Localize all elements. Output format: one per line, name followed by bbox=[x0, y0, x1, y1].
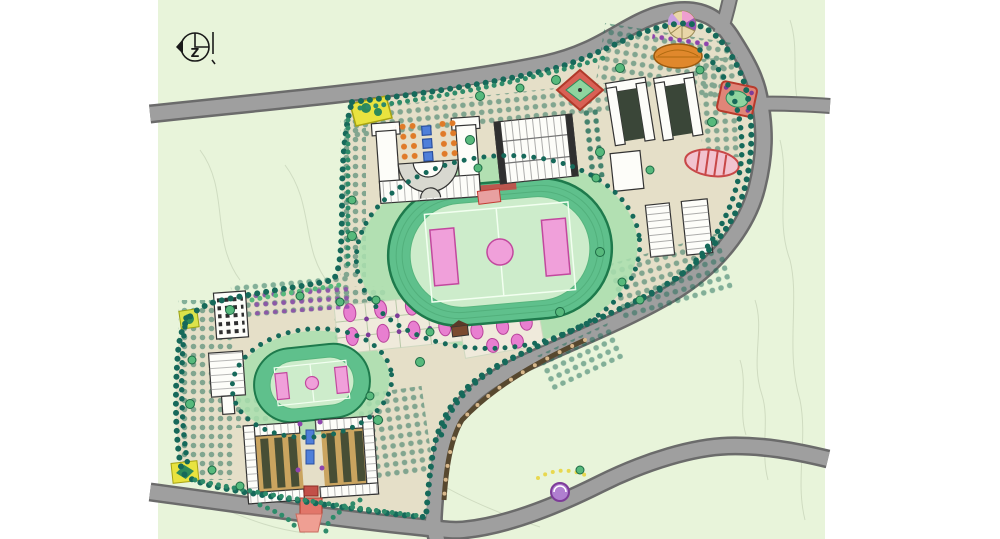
compass-letter: Z bbox=[191, 46, 200, 60]
site-plan-svg: Z bbox=[0, 0, 1000, 539]
campus-plan-figure: Z bbox=[0, 0, 1000, 539]
orange-dome bbox=[654, 44, 702, 68]
teaching-building-b bbox=[494, 114, 578, 184]
building-e1 bbox=[645, 203, 674, 257]
teaching-building-a bbox=[371, 116, 484, 203]
building-d bbox=[610, 151, 644, 192]
water-axis bbox=[422, 126, 433, 162]
red-court bbox=[477, 189, 500, 205]
